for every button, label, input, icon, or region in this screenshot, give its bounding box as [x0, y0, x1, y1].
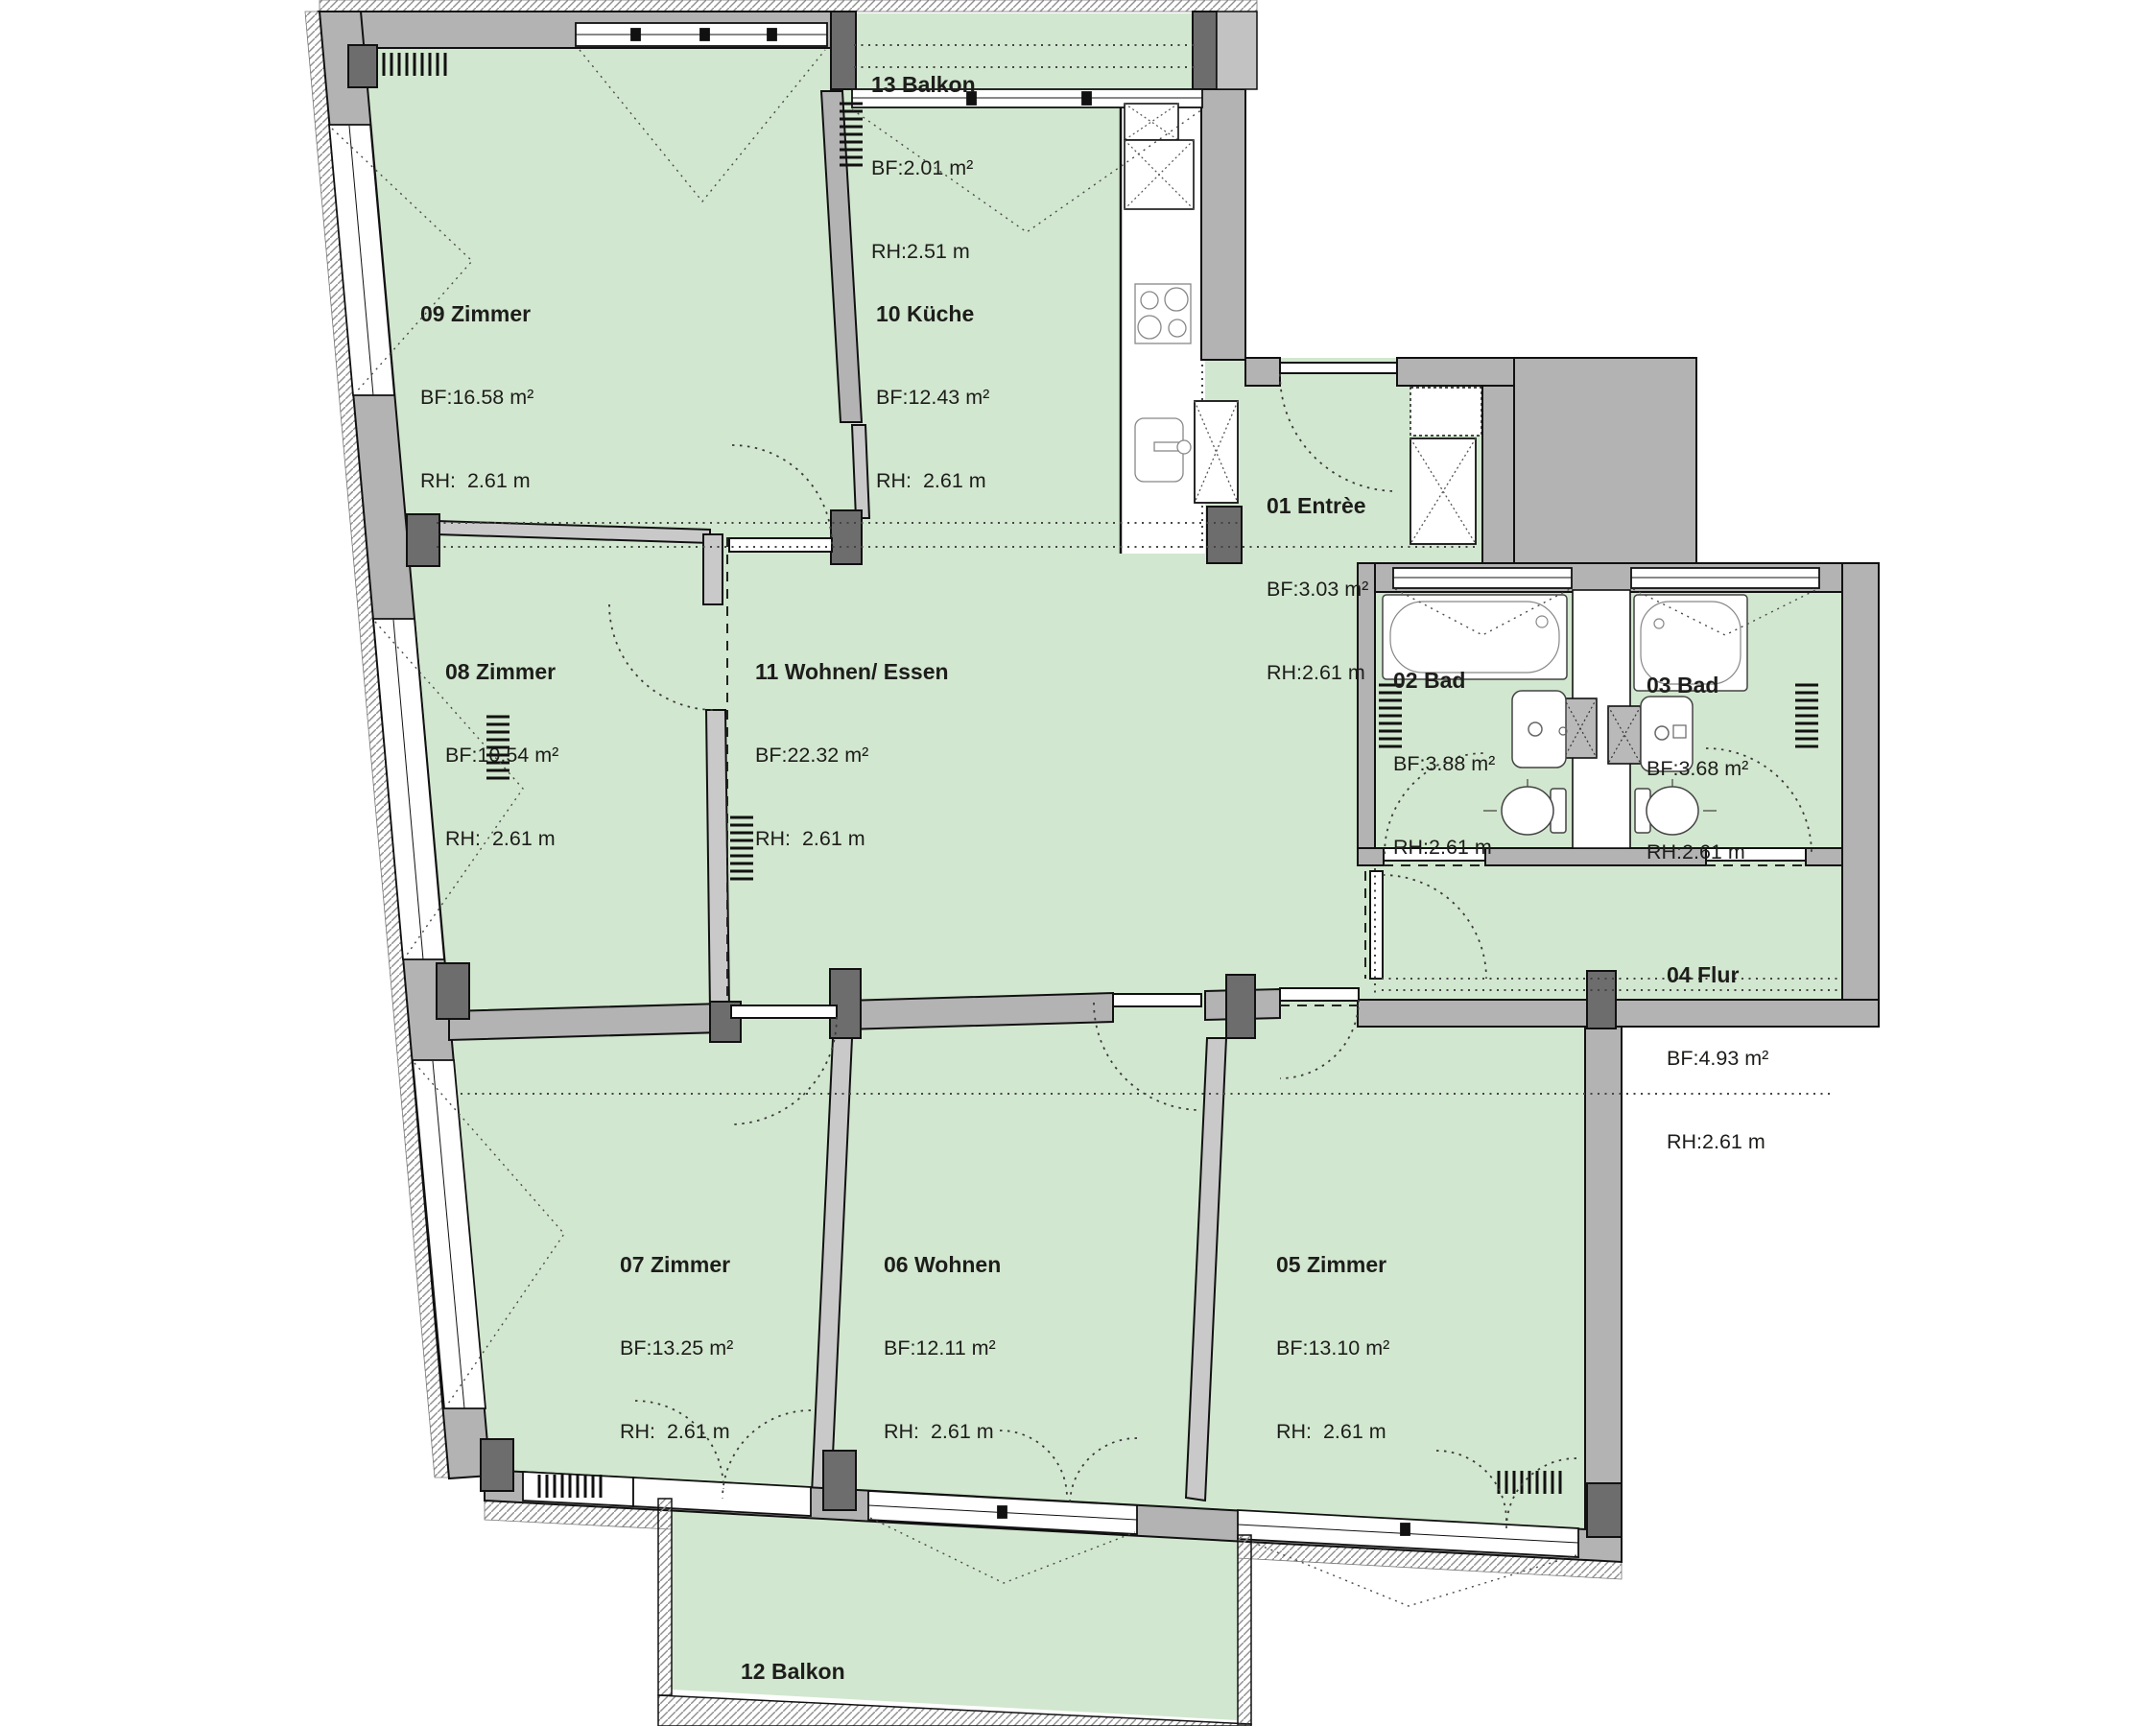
door-leaf-06 — [1113, 994, 1201, 1006]
room-rh: RH: 2.61 m — [755, 825, 949, 853]
room-name: 05 Zimmer — [1276, 1251, 1389, 1279]
wall-entree-top-left — [1245, 358, 1280, 386]
room-bf: BF:2.01 m² — [871, 154, 976, 182]
room-bf: BF:13.25 m² — [620, 1335, 733, 1362]
floor-plan: 01 Entrèe BF:3.03 m² RH:2.61 m 02 Bad BF… — [0, 0, 2156, 1726]
room-label-09-zimmer: 09 Zimmer BF:16.58 m² RH: 2.61 m — [420, 245, 533, 551]
room-rh: RH: 2.61 m — [884, 1418, 1001, 1446]
room-name: 04 Flur — [1667, 961, 1768, 989]
room-bf: BF:3.68 m² — [1647, 755, 1748, 783]
wall-bath-bottom-a — [1358, 848, 1384, 865]
room-label-13-balkon: 13 Balkon BF:2.01 m² RH:2.51 m — [871, 15, 976, 321]
wall-kitchen-right — [1201, 89, 1245, 360]
room-label-11-wohnen-essen: 11 Wohnen/ Essen BF:22.32 m² RH: 2.61 m — [755, 603, 949, 909]
room-bf: BF:4.93 m² — [1667, 1045, 1768, 1073]
room-label-01-entree: 01 Entrèe BF:3.03 m² RH:2.61 m — [1267, 437, 1368, 743]
room-rh: RH: 2.61 m — [620, 1418, 733, 1446]
room-rh: RH:2.51 m — [871, 238, 976, 266]
room-bf: BF:13.10 m² — [1276, 1335, 1389, 1362]
room-name: 13 Balkon — [871, 71, 976, 99]
room-label-07-zimmer: 07 Zimmer BF:13.25 m² RH: 2.61 m — [620, 1195, 733, 1501]
room-name: 02 Bad — [1393, 667, 1495, 695]
room-name: 06 Wohnen — [884, 1251, 1001, 1279]
floor-plan-drawing — [0, 0, 2156, 1726]
sink-02 — [1512, 691, 1567, 768]
room-name: 12 Balkon — [741, 1658, 845, 1686]
room-label-08-zimmer: 08 Zimmer BF:10.54 m² RH: 2.61 m — [445, 603, 558, 909]
wall-09-10-thin — [852, 425, 869, 518]
wall-05-right — [1585, 1027, 1622, 1539]
room-bf: BF:12.11 m² — [884, 1335, 1001, 1362]
door-leaf-flur — [1370, 871, 1383, 979]
room-rh: RH: 2.61 m — [445, 825, 558, 853]
door-leaf-09 — [729, 538, 832, 552]
room-label-06-wohnen: 06 Wohnen BF:12.11 m² RH: 2.61 m — [884, 1195, 1001, 1501]
room-bf: BF:22.32 m² — [755, 742, 949, 769]
wall-08-11-lower — [706, 710, 729, 1011]
room-rh: RH:2.61 m — [1393, 834, 1495, 862]
room-bf: BF:3.88 m² — [1393, 750, 1495, 778]
room-name: 08 Zimmer — [445, 658, 558, 686]
room-rh: RH:2.61 m — [1647, 839, 1748, 866]
room-name: 09 Zimmer — [420, 300, 533, 328]
wall-flur-bottom — [1358, 1000, 1879, 1027]
door-leaf-07 — [731, 1005, 837, 1018]
room-name: 11 Wohnen/ Essen — [755, 658, 949, 686]
wall-entree-right — [1482, 386, 1514, 563]
room-bf: BF:3.03 m² — [1267, 576, 1368, 603]
room-name: 07 Zimmer — [620, 1251, 733, 1279]
wall-08-11-upper — [703, 534, 723, 604]
room-bf: BF:16.58 m² — [420, 384, 533, 412]
room-bf: BF:12.43 m² — [876, 384, 989, 412]
room-bf: BF:10.54 m² — [445, 742, 558, 769]
room-rh: RH: 2.61 m — [420, 467, 533, 495]
wall-entree-top-right — [1397, 358, 1514, 386]
room-label-04-flur: 04 Flur BF:4.93 m² RH:2.61 m — [1667, 906, 1768, 1212]
room-rh: RH: 2.61 m — [876, 467, 989, 495]
door-leaf-05 — [1280, 988, 1359, 1001]
room-label-12-balkon: 12 Balkon BF:9.10 m² RH:2.51 m — [741, 1602, 845, 1726]
room-label-02-bad: 02 Bad BF:3.88 m² RH:2.61 m — [1393, 611, 1495, 917]
room-label-03-bad: 03 Bad BF:3.68 m² RH:2.61 m — [1647, 616, 1748, 922]
wall-outer-right — [1842, 563, 1879, 1027]
room-name: 01 Entrèe — [1267, 492, 1368, 520]
door-leaf-entrance — [1280, 363, 1397, 373]
balcony13-right-pier — [1217, 12, 1257, 89]
room-rh: RH:2.61 m — [1267, 659, 1368, 687]
room-rh: RH:2.61 m — [1667, 1128, 1768, 1156]
room-rh: RH: 2.61 m — [1276, 1418, 1389, 1446]
room-name: 03 Bad — [1647, 672, 1748, 699]
wall-core-mass — [1514, 358, 1696, 563]
stove — [1135, 284, 1191, 343]
room-label-05-zimmer: 05 Zimmer BF:13.10 m² RH: 2.61 m — [1276, 1195, 1389, 1501]
kitchen-sink — [1135, 418, 1191, 482]
